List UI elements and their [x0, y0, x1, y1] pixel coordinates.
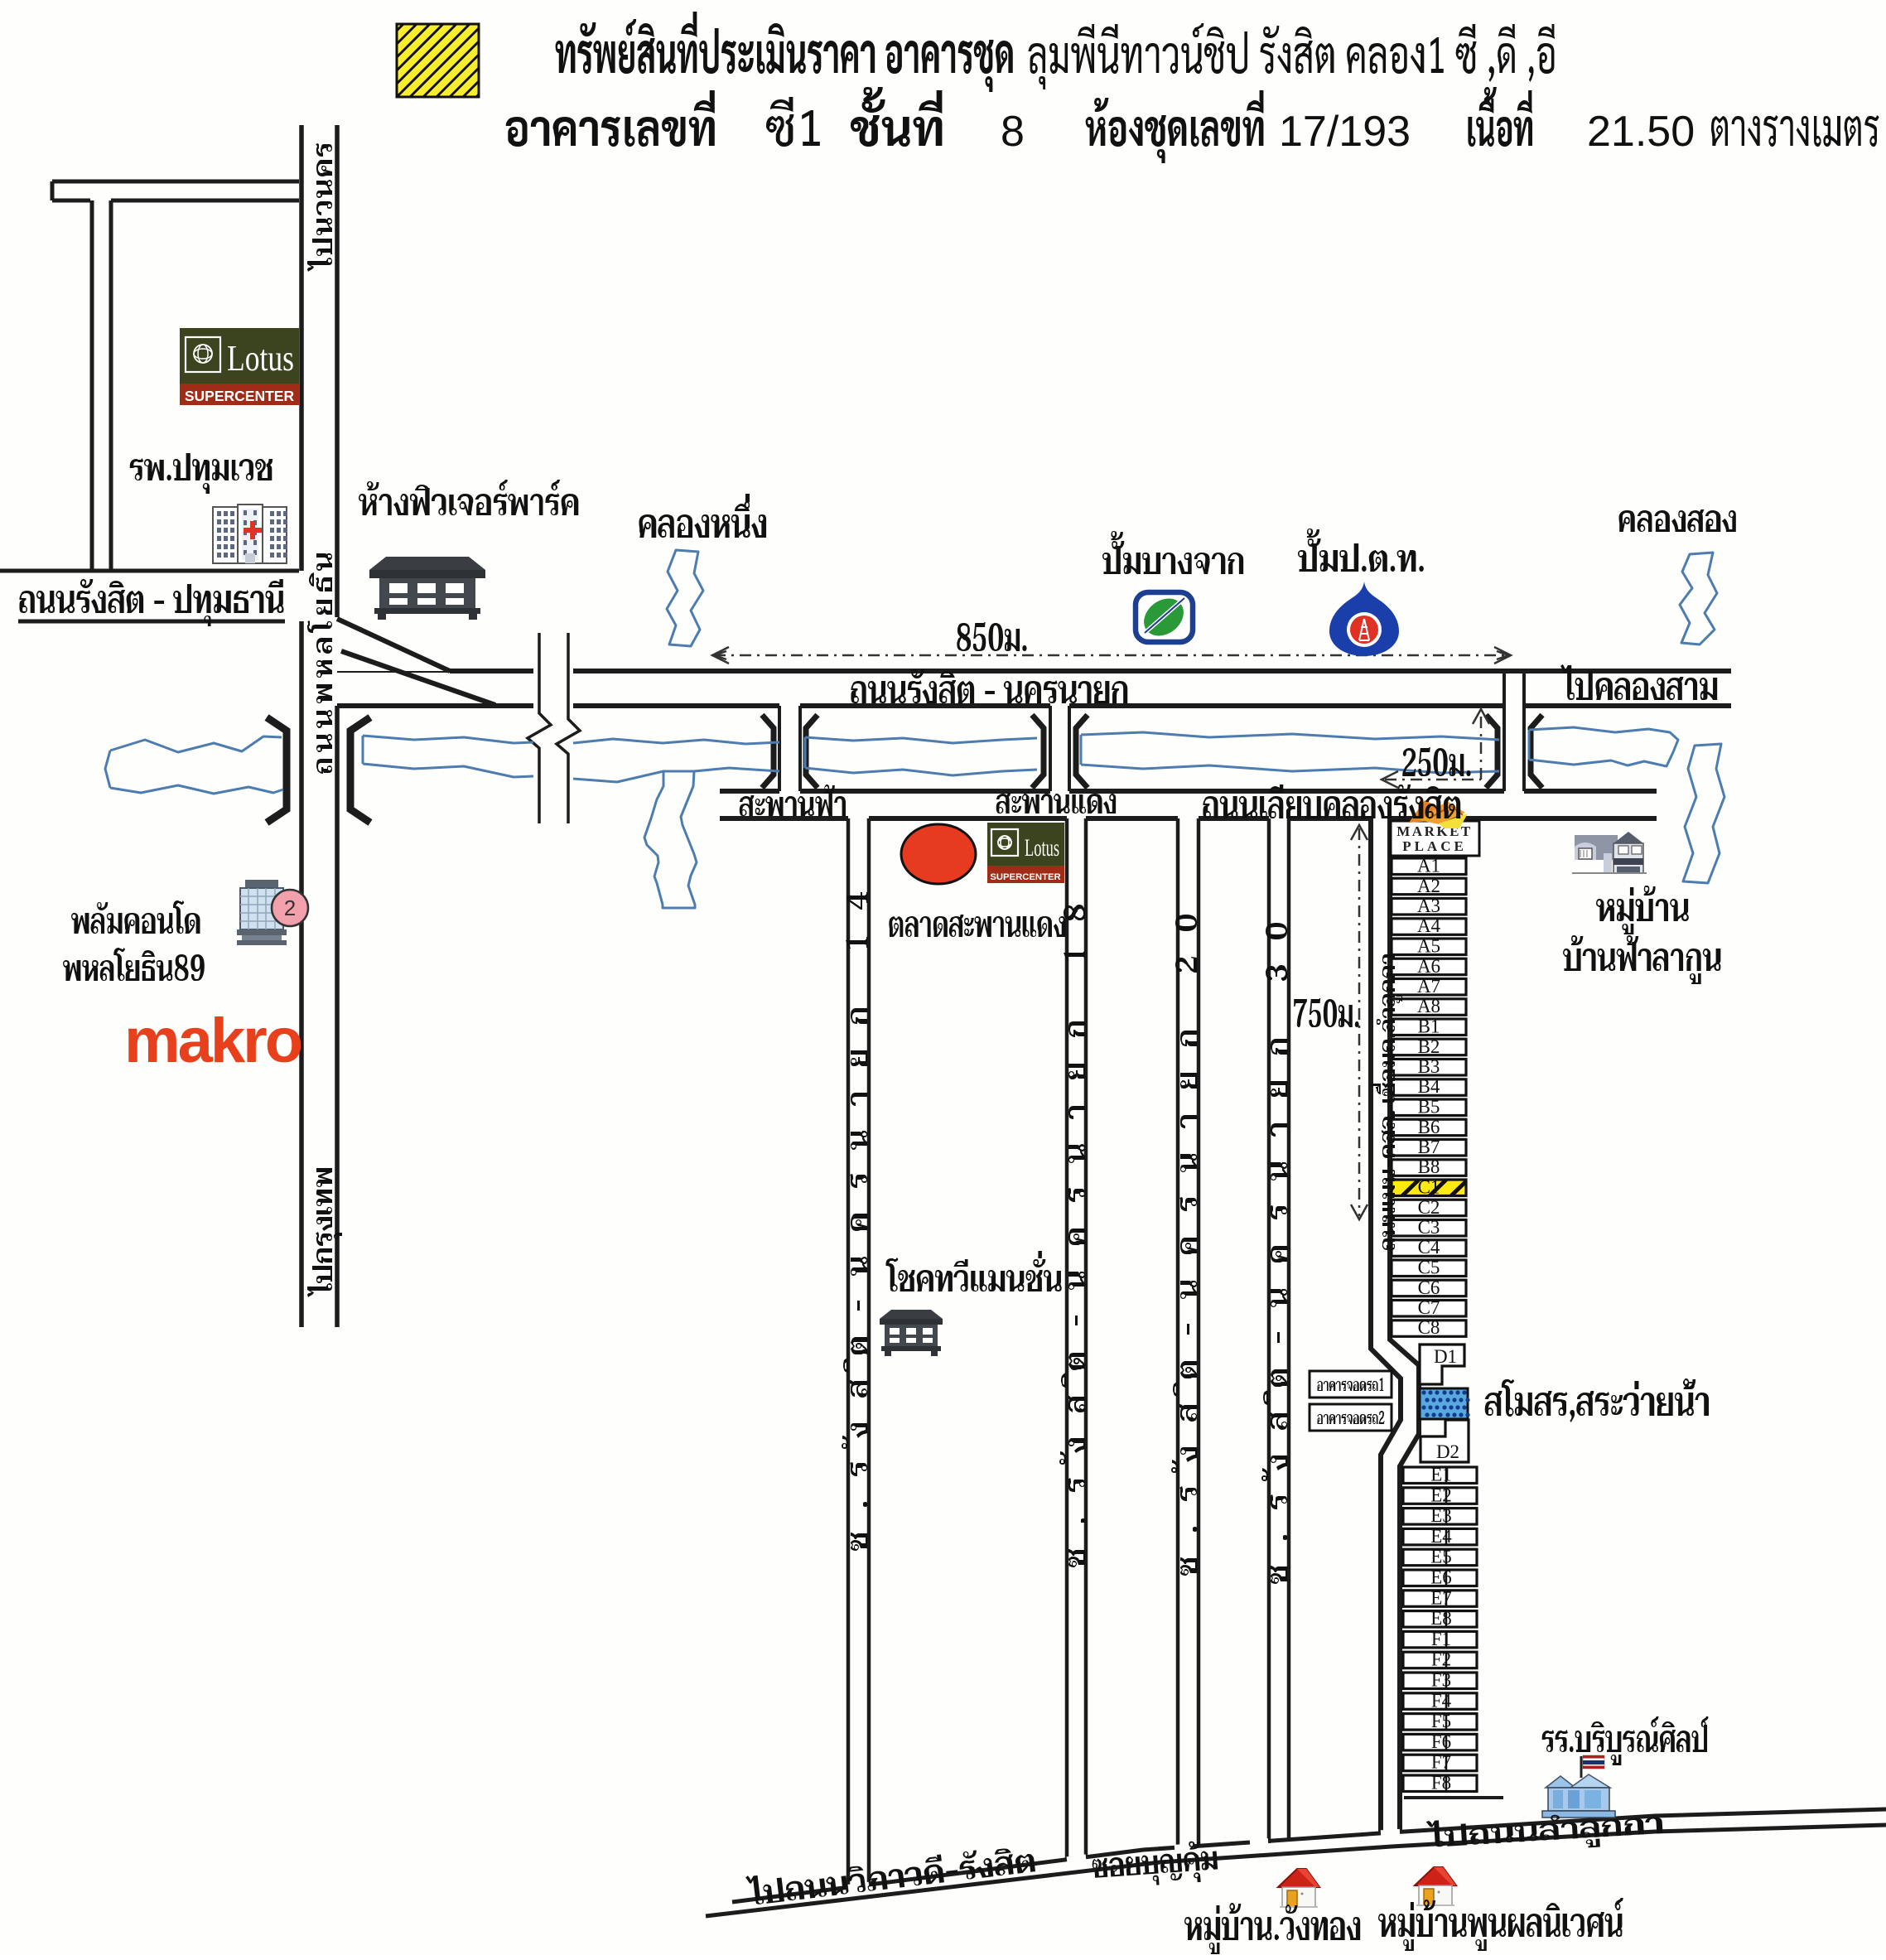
svg-text:Lotus: Lotus [227, 338, 294, 379]
svg-text:F3: F3 [1431, 1670, 1451, 1691]
svg-text:PLACE: PLACE [1402, 838, 1467, 854]
svg-text:C1: C1 [1418, 1177, 1440, 1198]
svg-text:A5: A5 [1417, 936, 1440, 957]
svg-text:F5: F5 [1431, 1711, 1451, 1731]
svg-text:B6: B6 [1418, 1117, 1440, 1137]
svg-text:17/193: 17/193 [1279, 108, 1411, 156]
svg-text:A6: A6 [1417, 956, 1440, 977]
svg-text:C8: C8 [1418, 1317, 1440, 1338]
svg-text:8: 8 [1001, 108, 1025, 156]
svg-text:C2: C2 [1418, 1197, 1440, 1218]
svg-text:D1: D1 [1434, 1346, 1457, 1367]
svg-text:F6: F6 [1431, 1731, 1451, 1752]
svg-text:C7: C7 [1418, 1297, 1440, 1318]
svg-text:E7: E7 [1430, 1587, 1452, 1608]
svg-text:B2: B2 [1418, 1036, 1440, 1057]
svg-text:C3: C3 [1418, 1217, 1440, 1238]
svg-text:C5: C5 [1418, 1258, 1440, 1278]
svg-text:F8: F8 [1431, 1773, 1451, 1793]
svg-text:makro: makro [124, 1006, 301, 1076]
svg-text:C4: C4 [1418, 1237, 1440, 1258]
svg-text:B7: B7 [1418, 1137, 1440, 1157]
svg-text:E3: E3 [1430, 1505, 1452, 1526]
svg-text:F7: F7 [1431, 1752, 1451, 1773]
svg-text:F4: F4 [1431, 1690, 1452, 1711]
svg-text:E6: E6 [1430, 1567, 1452, 1588]
svg-text:2: 2 [284, 896, 296, 920]
svg-text:E8: E8 [1430, 1608, 1452, 1629]
svg-text:B8: B8 [1418, 1156, 1440, 1177]
svg-text:B3: B3 [1418, 1056, 1440, 1077]
svg-text:Lotus: Lotus [1025, 834, 1059, 862]
svg-text:A8: A8 [1417, 996, 1440, 1016]
svg-text:B4: B4 [1418, 1076, 1440, 1097]
svg-text:F2: F2 [1431, 1649, 1451, 1670]
svg-text:A4: A4 [1417, 915, 1441, 936]
svg-text:E4: E4 [1430, 1526, 1452, 1547]
svg-text:C6: C6 [1418, 1277, 1440, 1298]
svg-text:A7: A7 [1417, 976, 1440, 997]
svg-text:E1: E1 [1430, 1465, 1452, 1485]
svg-text:D2: D2 [1436, 1441, 1459, 1462]
svg-text:21.50: 21.50 [1587, 108, 1695, 156]
svg-text:E2: E2 [1430, 1484, 1452, 1505]
svg-text:MARKET: MARKET [1396, 823, 1473, 839]
svg-text:F1: F1 [1431, 1629, 1451, 1649]
svg-text:B5: B5 [1418, 1097, 1440, 1118]
svg-text:A3: A3 [1417, 896, 1440, 916]
svg-text:SUPERCENTER: SUPERCENTER [990, 872, 1060, 882]
svg-text:A1: A1 [1417, 856, 1440, 876]
svg-text:A2: A2 [1417, 876, 1440, 896]
svg-text:SUPERCENTER: SUPERCENTER [185, 388, 295, 404]
svg-text:E5: E5 [1430, 1547, 1452, 1567]
svg-text:B1: B1 [1418, 1016, 1440, 1037]
